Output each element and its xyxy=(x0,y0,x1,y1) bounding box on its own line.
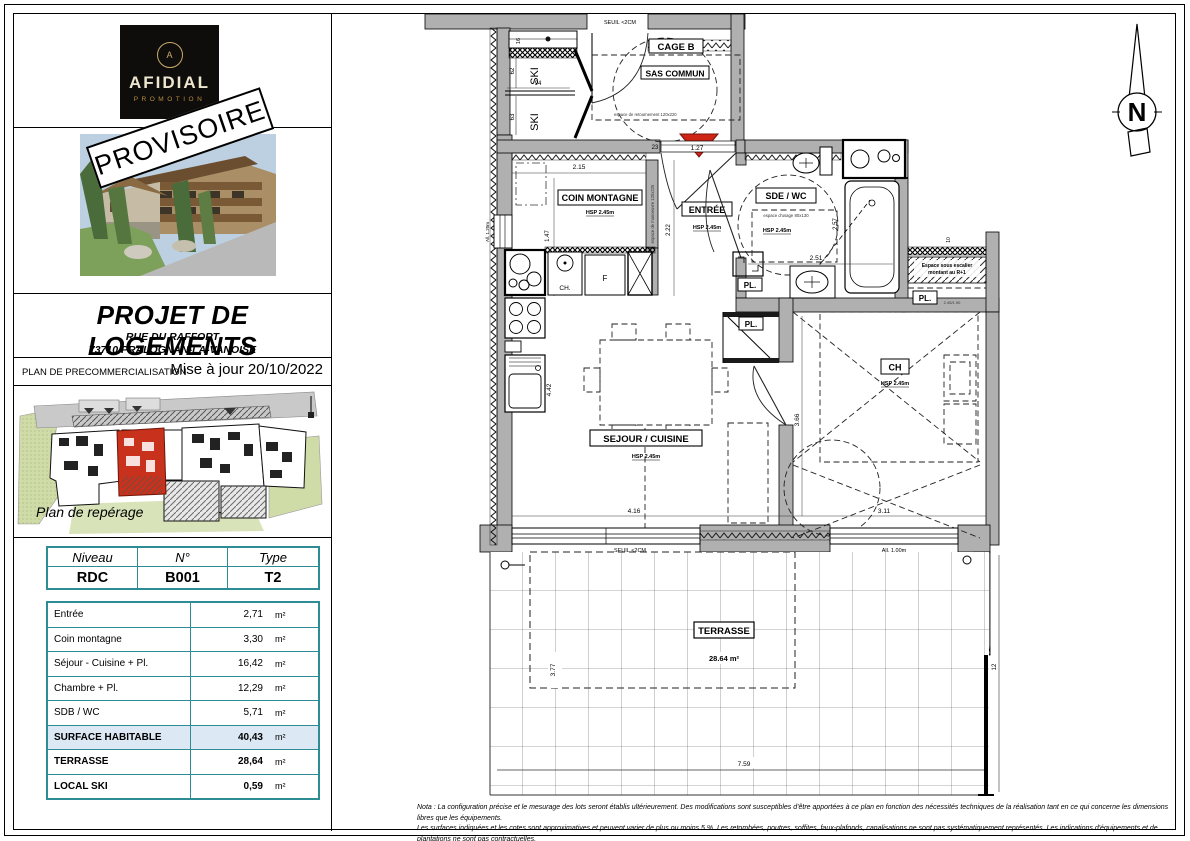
sejour-closet: PL. xyxy=(723,312,779,363)
ch-door xyxy=(753,366,786,425)
table-row: Entrée2,71m² xyxy=(48,603,318,628)
dim: 94 xyxy=(535,81,542,87)
left-panel-divider xyxy=(331,13,332,831)
ski-label: SKI xyxy=(529,113,541,131)
ch-label: CH xyxy=(889,363,902,373)
room-ch xyxy=(784,312,980,538)
table-row: Chambre + Pl.12,29m² xyxy=(48,677,318,702)
room-terrasse: TERRASSE 28.64 m² 3.77 7.59 12 xyxy=(490,552,999,795)
unit-col-niveau: Niveau xyxy=(48,548,138,567)
address-line2: 73710 PRALOGNAN-LA-VANOISE xyxy=(13,344,332,357)
table-row: SDB / WC5,71m² xyxy=(48,701,318,726)
dim: 2.22 xyxy=(666,224,672,236)
stair-note-1: Espace sous escalier xyxy=(922,263,973,269)
sde-wc-label: SDE / WC xyxy=(765,191,807,201)
usage-note: espace d'usage 80x130 xyxy=(763,213,809,218)
table-row: Séjour - Cuisine + Pl.16,42m² xyxy=(48,652,318,677)
table-row: Coin montagne3,30m² xyxy=(48,628,318,653)
dim: 4.42 xyxy=(546,383,553,396)
dim: 7.59 xyxy=(738,761,751,768)
divider xyxy=(13,293,331,294)
water-heater-label: CH. xyxy=(559,285,570,292)
north-compass: N xyxy=(1112,24,1162,156)
project-address: RUE DU RAFFORT 73710 PRALOGNAN-LA-VANOIS… xyxy=(13,331,332,356)
highlighted-unit xyxy=(117,428,166,496)
table-row-surface-habitable: SURFACE HABITABLE40,43m² xyxy=(48,726,318,751)
update-date: Mise à jour 20/10/2022 xyxy=(13,361,323,378)
dim: 10 xyxy=(946,237,952,243)
closet-label: PL. xyxy=(919,294,931,303)
unit-col-numero: N° xyxy=(138,548,228,567)
entree-label: ENTRÉE xyxy=(689,205,726,215)
logo-monogram-icon: A xyxy=(157,42,183,68)
stair-note-2: montant au R+1 xyxy=(928,270,966,276)
unit-numero: B001 xyxy=(138,567,228,588)
retournement-note: espace de retournement 120x220 xyxy=(614,112,677,117)
plan-sheet: A AFIDIAL PROMOTION PROVISOIRE PROJET DE… xyxy=(0,0,1190,841)
room-local-ski: 16 SKI SKI 62 63 94 xyxy=(505,31,592,138)
cage-b-label: CAGE B xyxy=(658,42,695,53)
dim: 62 xyxy=(510,67,516,74)
left-window: All. 1.20m xyxy=(485,215,512,248)
coin-montagne-label: COIN MONTAGNE xyxy=(562,193,639,203)
manoeuvre-note: espace de manoeuvre 120x225 xyxy=(650,184,655,243)
hsp-label: HSP 2.45m xyxy=(881,381,909,387)
north-label: N xyxy=(1128,97,1147,127)
unit-table: Niveau N° Type RDC B001 T2 xyxy=(46,546,320,590)
dim: 3.66 xyxy=(794,413,801,426)
floor-plan: CAGE B SAS COMMUN espace de retournement… xyxy=(335,13,1177,803)
unit-col-type: Type xyxy=(228,548,318,567)
room-sas-commun: CAGE B SAS COMMUN espace de retournement… xyxy=(592,17,740,142)
dim: 2.15 xyxy=(573,164,586,171)
dim: 16 xyxy=(516,38,522,44)
footnote-line2: Les surfaces indiquées et les cotes sont… xyxy=(417,824,1179,841)
hsp-label: HSP 2.45m xyxy=(763,228,791,234)
fridge-label: F xyxy=(603,274,608,283)
dim: 4.16 xyxy=(628,508,641,515)
dim: 1.47 xyxy=(545,230,551,242)
hsp-label: HSP 2.45m xyxy=(586,210,614,216)
table-row-local-ski: LOCAL SKI0,59m² xyxy=(48,775,318,799)
closet-label: PL. xyxy=(745,320,757,329)
closet-label: PL. xyxy=(744,281,756,290)
divider xyxy=(13,537,331,538)
terrasse-area: 28.64 m² xyxy=(709,654,740,663)
dim: 3.11 xyxy=(878,508,891,515)
legal-footnote: Nota : La configuration précise et le me… xyxy=(417,803,1179,841)
hsp-label: HSP 2.45m xyxy=(632,454,660,460)
allege-label: All. 1.20m xyxy=(485,222,490,242)
siteplan-caption: Plan de repérage xyxy=(36,504,143,520)
unit-niveau: RDC xyxy=(48,567,138,588)
sas-commun-label: SAS COMMUN xyxy=(645,69,704,79)
dim: 2.57 xyxy=(833,218,839,230)
dim: 1.27 xyxy=(691,145,704,152)
logo-brand: AFIDIAL xyxy=(129,73,210,93)
unit-type: T2 xyxy=(228,567,318,588)
dim: 63 xyxy=(510,113,516,120)
closet-dims: 2.45/1.90 xyxy=(944,300,961,305)
sejour-label: SEJOUR / CUISINE xyxy=(603,434,689,445)
seuil-top-label: SEUIL <2CM xyxy=(604,20,636,26)
dim: 23 xyxy=(652,145,659,151)
logo-subtitle: PROMOTION xyxy=(134,96,206,103)
dim: 3.77 xyxy=(550,663,557,676)
company-logo: A AFIDIAL PROMOTION xyxy=(120,25,219,119)
dim: 2.51 xyxy=(810,255,823,262)
surface-table: Entrée2,71m² Coin montagne3,30m² Séjour … xyxy=(46,601,320,800)
address-line1: RUE DU RAFFORT xyxy=(13,331,332,344)
kitchen-fixtures: CH. F xyxy=(505,250,652,412)
table-row-terrasse: TERRASSE28,64m² xyxy=(48,750,318,775)
footnote-line1: Nota : La configuration précise et le me… xyxy=(417,803,1179,824)
terrasse-label: TERRASSE xyxy=(698,626,750,637)
dim: 12 xyxy=(992,663,998,670)
